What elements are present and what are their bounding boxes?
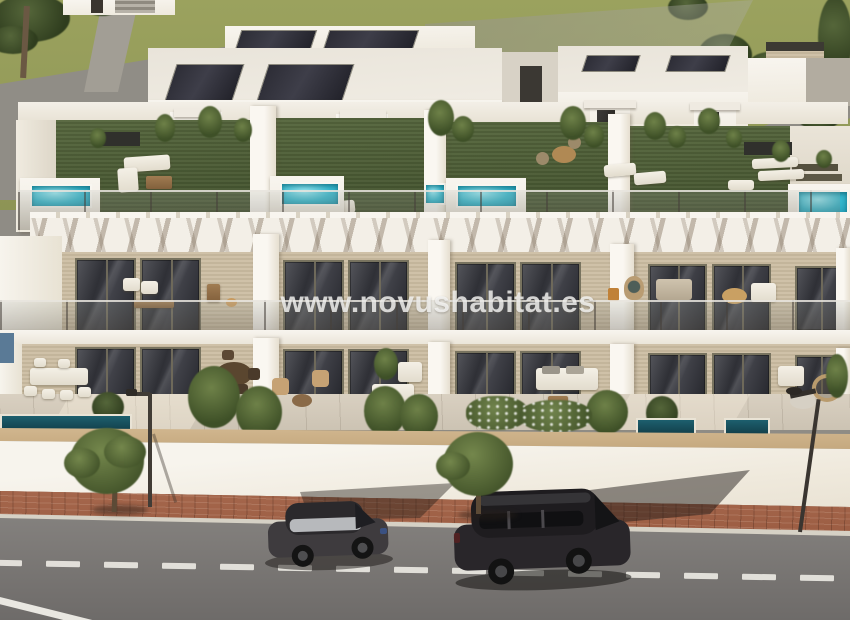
dining-table: [30, 368, 88, 385]
flowering-shrub: [466, 396, 528, 430]
neighbor-roof-right-shaded: [806, 58, 850, 106]
dining-chair: [42, 389, 55, 399]
roof-volume-right-top: [558, 46, 748, 98]
lane-dash: [684, 573, 718, 580]
wicker-armchair: [312, 370, 329, 387]
solar-panel: [665, 55, 731, 72]
banana-plant: [826, 354, 848, 398]
dining-chair-dark: [222, 350, 234, 360]
stair-bulkhead-canopy: [690, 102, 740, 110]
street-tree: [436, 452, 470, 480]
sofa-cushion: [566, 366, 584, 374]
background-building-steps: [115, 0, 155, 13]
dining-chair: [24, 386, 37, 396]
stair-bulkhead-canopy: [584, 100, 636, 108]
parked-suv: [444, 479, 640, 598]
potted-plant: [772, 140, 790, 162]
potted-plant: [452, 116, 474, 142]
potted-plant: [428, 100, 454, 136]
street-lamp-head: [126, 389, 137, 396]
solar-panel: [323, 30, 419, 50]
potted-plant: [234, 118, 252, 142]
round-coffee-table: [292, 394, 312, 407]
potted-plant: [698, 108, 720, 134]
outdoor-armchair: [778, 366, 804, 386]
potted-plant: [668, 126, 686, 148]
solar-panel: [256, 64, 355, 104]
solar-panel: [581, 55, 641, 72]
street-lamp-head: [786, 387, 802, 395]
background-wood-building-roof: [766, 42, 824, 51]
tree-trunk: [476, 494, 481, 514]
dining-chair: [58, 359, 70, 368]
tree-shadow: [92, 505, 148, 515]
coffee-table: [146, 176, 172, 189]
flowering-shrub: [520, 400, 592, 432]
outdoor-sofa: [117, 167, 139, 192]
architectural-render: www.novushabitat.es: [0, 0, 850, 620]
potted-plant: [584, 124, 604, 148]
wicker-chair: [536, 152, 549, 165]
balcony-sofa: [656, 279, 692, 300]
potted-plant: [155, 114, 175, 142]
balcony-armchair: [123, 278, 140, 291]
street-lamp-pole: [148, 393, 152, 507]
potted-plant: [198, 106, 222, 138]
bench: [728, 180, 754, 190]
street-tree: [104, 436, 146, 468]
lane-dash: [104, 562, 138, 569]
lane-dash: [800, 575, 834, 582]
outdoor-armchair: [398, 362, 422, 382]
solar-panel: [235, 30, 317, 50]
street-tree: [64, 448, 100, 478]
sofa-cushion: [542, 366, 560, 374]
potted-plant: [560, 106, 586, 140]
potted-plant: [90, 128, 106, 148]
dining-chair: [60, 390, 73, 400]
watermark-text: www.novushabitat.es: [270, 286, 606, 320]
lane-dash: [220, 564, 254, 571]
potted-plant: [726, 128, 742, 148]
solar-panel: [164, 64, 245, 104]
dining-chair: [78, 387, 91, 397]
lane-dash: [742, 574, 776, 581]
potted-plant: [644, 112, 666, 140]
lane-dash: [46, 561, 80, 568]
background-parked-object: [0, 333, 14, 363]
rattan-chair: [624, 276, 644, 300]
potted-palm: [374, 348, 398, 380]
lane-dash: [0, 560, 22, 567]
balcony-armchair: [141, 281, 158, 294]
tree-shadow: [458, 510, 518, 520]
banana-plant: [188, 366, 240, 428]
lane-dash: [162, 563, 196, 570]
dining-chair: [34, 358, 46, 367]
parked-hatchback: [255, 492, 400, 575]
roof-deck-mat: [102, 132, 140, 146]
background-building-door: [91, 0, 103, 13]
dining-chair-dark: [248, 368, 260, 380]
potted-plant: [816, 150, 832, 168]
banana-plant: [586, 390, 628, 434]
